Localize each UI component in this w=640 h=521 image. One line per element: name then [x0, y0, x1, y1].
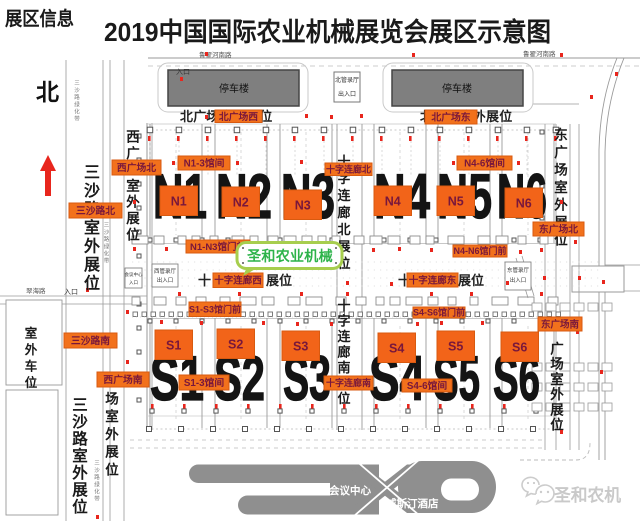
svg-text:化: 化	[104, 250, 110, 258]
svg-text:展位: 展位	[458, 273, 484, 288]
svg-text:绿: 绿	[94, 480, 100, 488]
svg-text:展: 展	[550, 402, 564, 417]
svg-text:鲁翟河南路: 鲁翟河南路	[199, 50, 232, 59]
svg-text:展: 展	[105, 445, 119, 460]
svg-text:广: 广	[550, 341, 564, 357]
svg-text:三沙路南: 三沙路南	[71, 334, 110, 347]
svg-text:绿: 绿	[74, 100, 80, 108]
svg-text:外: 外	[83, 237, 100, 256]
svg-text:路: 路	[104, 235, 110, 243]
svg-text:S4-S6馆门前: S4-S6馆门前	[413, 307, 465, 318]
svg-text:入口: 入口	[176, 68, 190, 76]
svg-text:带: 带	[94, 496, 100, 503]
svg-text:圣和农业机械: 圣和农业机械	[246, 248, 333, 264]
svg-text:N5: N5	[448, 195, 464, 209]
svg-text:停车楼: 停车楼	[442, 82, 472, 95]
svg-text:南: 南	[337, 360, 350, 375]
svg-text:化: 化	[74, 108, 80, 116]
svg-text:车: 车	[25, 359, 38, 374]
svg-text:西: 西	[126, 130, 140, 145]
svg-text:十字连廊北: 十字连廊北	[326, 164, 371, 175]
svg-text:西广场南: 西广场南	[103, 373, 142, 386]
svg-text:N6: N6	[516, 197, 532, 211]
svg-text:十: 十	[198, 273, 211, 288]
svg-text:鲁翟河南路: 鲁翟河南路	[523, 49, 556, 58]
svg-text:三: 三	[84, 165, 100, 182]
svg-text:威斯汀酒店: 威斯汀酒店	[386, 497, 439, 510]
svg-text:带: 带	[74, 116, 80, 123]
svg-text:外: 外	[24, 342, 38, 357]
svg-text:室: 室	[72, 446, 88, 465]
svg-text:路: 路	[94, 473, 100, 481]
svg-text:外: 外	[550, 386, 564, 402]
svg-text:展区信息: 展区信息	[5, 7, 74, 30]
svg-text:沙: 沙	[104, 229, 110, 236]
svg-text:路: 路	[72, 429, 88, 448]
svg-text:S1-3馆间: S1-3馆间	[184, 376, 224, 389]
svg-text:东: 东	[554, 127, 568, 143]
svg-text:带: 带	[104, 258, 110, 265]
svg-text:室: 室	[25, 326, 38, 341]
svg-text:N1: N1	[171, 195, 187, 209]
svg-text:N1-3馆间: N1-3馆间	[184, 157, 225, 170]
svg-text:圣和农机: 圣和农机	[554, 485, 621, 505]
svg-text:S3: S3	[293, 340, 308, 354]
svg-text:西广场北: 西广场北	[117, 161, 156, 174]
svg-text:北广场东: 北广场东	[431, 111, 470, 124]
svg-text:十字连廊西: 十字连廊西	[214, 275, 262, 287]
svg-text:北管录厅: 北管录厅	[335, 76, 359, 84]
svg-text:位: 位	[84, 274, 100, 293]
svg-text:N4-6馆间: N4-6馆间	[464, 157, 505, 170]
svg-text:展位: 展位	[266, 273, 292, 288]
svg-text:外: 外	[554, 197, 568, 213]
svg-text:展: 展	[126, 211, 140, 226]
svg-text:东管录厅: 东管录厅	[507, 266, 530, 274]
svg-text:S4: S4	[389, 342, 404, 356]
svg-text:十字连廊东: 十字连廊东	[409, 274, 457, 286]
svg-text:十: 十	[337, 298, 350, 313]
svg-text:三: 三	[72, 397, 88, 414]
svg-text:展: 展	[84, 256, 101, 274]
svg-text:三: 三	[74, 80, 80, 87]
svg-text:绿: 绿	[104, 242, 110, 250]
svg-text:沙: 沙	[84, 182, 100, 200]
svg-text:出入口: 出入口	[338, 90, 356, 98]
svg-text:会议中心: 会议中心	[125, 271, 143, 278]
svg-text:室: 室	[84, 218, 100, 237]
svg-text:东广场南: 东广场南	[541, 318, 580, 330]
svg-text:位: 位	[126, 226, 140, 242]
svg-text:路: 路	[74, 93, 80, 101]
svg-text:展: 展	[72, 481, 88, 499]
svg-text:S2: S2	[228, 338, 243, 352]
svg-text:室: 室	[126, 177, 140, 193]
svg-text:廊: 廊	[337, 345, 350, 360]
svg-text:沙: 沙	[72, 413, 88, 431]
svg-text:入口: 入口	[64, 288, 78, 296]
svg-text:出入口: 出入口	[510, 276, 527, 284]
svg-text:S1-S3馆门前: S1-S3馆门前	[189, 304, 241, 315]
svg-text:广: 广	[126, 145, 140, 161]
svg-text:广: 广	[554, 144, 568, 160]
svg-text:翠海路: 翠海路	[26, 286, 46, 295]
svg-text:北: 北	[337, 222, 350, 237]
svg-text:S1: S1	[166, 339, 181, 353]
svg-text:S6: S6	[512, 341, 527, 355]
svg-text:位: 位	[337, 391, 350, 406]
svg-text:S4-6馆间: S4-6馆间	[407, 379, 447, 392]
svg-text:三: 三	[104, 222, 110, 229]
svg-text:N4-N6馆门前: N4-N6馆门前	[453, 245, 506, 256]
svg-text:会议中心: 会议中心	[329, 484, 371, 497]
svg-text:化: 化	[94, 488, 100, 496]
svg-text:场: 场	[554, 163, 568, 178]
svg-text:沙: 沙	[74, 87, 80, 94]
svg-text:连: 连	[337, 188, 351, 203]
svg-text:出入口: 出入口	[157, 276, 174, 284]
svg-text:连: 连	[337, 329, 351, 344]
svg-text:室: 室	[554, 179, 568, 195]
svg-text:N3: N3	[295, 199, 311, 213]
svg-text:S5: S5	[448, 340, 463, 354]
svg-text:场: 场	[105, 391, 119, 406]
svg-text:位: 位	[25, 375, 38, 390]
svg-text:北广场西: 北广场西	[219, 110, 258, 123]
svg-text:北: 北	[36, 79, 59, 105]
svg-text:位: 位	[72, 497, 88, 516]
svg-text:三沙路北: 三沙路北	[76, 204, 115, 217]
svg-text:室: 室	[550, 371, 564, 387]
svg-text:2019中国国际农业机械展览会展区示意图: 2019中国国际农业机械展览会展区示意图	[104, 17, 551, 47]
svg-text:场: 场	[550, 357, 564, 372]
svg-text:室: 室	[105, 408, 119, 424]
svg-text:三: 三	[94, 460, 100, 467]
svg-text:位: 位	[105, 462, 119, 478]
svg-text:十字连廊南: 十字连廊南	[326, 377, 371, 388]
svg-text:西管录厅: 西管录厅	[154, 267, 177, 275]
svg-text:字: 字	[337, 314, 350, 329]
svg-text:外: 外	[72, 463, 88, 482]
svg-text:N4: N4	[385, 195, 401, 209]
svg-text:廊: 廊	[337, 205, 350, 220]
svg-text:东广场北: 东广场北	[539, 223, 578, 236]
svg-text:停车楼: 停车楼	[219, 82, 249, 95]
svg-text:沙: 沙	[94, 467, 100, 474]
svg-text:N2: N2	[233, 196, 249, 210]
svg-text:外: 外	[105, 426, 119, 442]
